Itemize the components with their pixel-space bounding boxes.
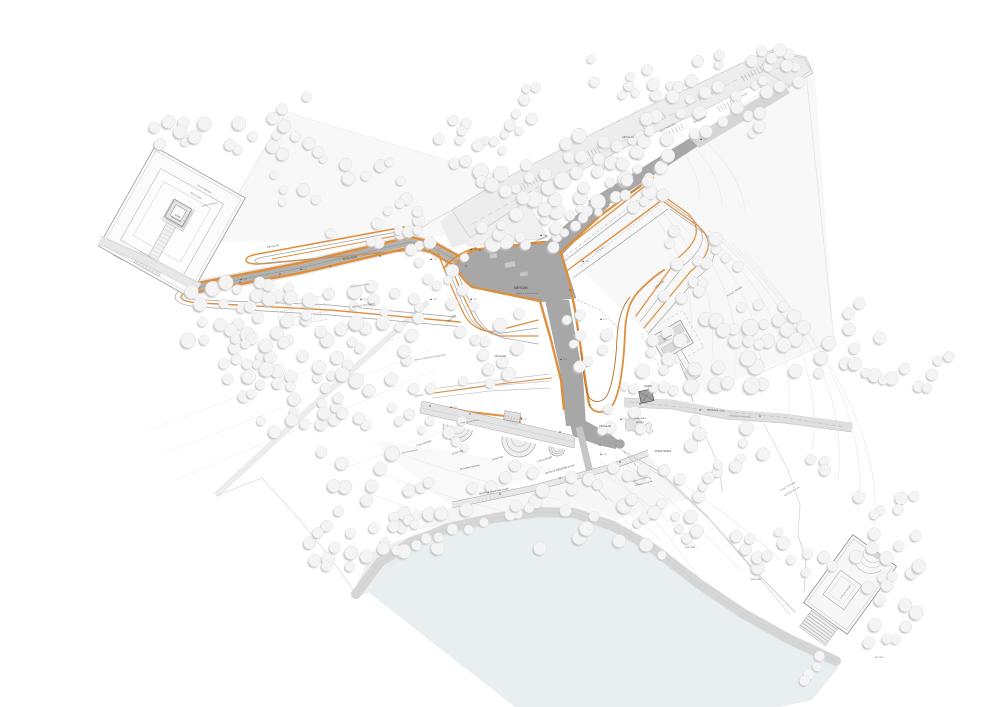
- svg-text:77.35: 77.35: [603, 319, 607, 321]
- svg-text:Şelale/Süs Havuzu Kademe: Şelale/Süs Havuzu Kademe: [516, 293, 538, 295]
- svg-text:TRAFO: TRAFO: [644, 385, 652, 388]
- svg-text:77.35: 77.35: [473, 299, 477, 301]
- svg-text:SUP YERİ: SUP YERİ: [751, 578, 762, 581]
- svg-text:MEYDAN: MEYDAN: [514, 286, 528, 290]
- svg-text:77.35: 77.35: [585, 261, 589, 263]
- svg-text:(MEVZİ): (MEVZİ): [636, 421, 644, 424]
- svg-text:77.35: 77.35: [563, 359, 567, 361]
- svg-text:77.35: 77.35: [433, 259, 437, 261]
- svg-text:77.35: 77.35: [523, 419, 527, 421]
- svg-text:77.35: 77.35: [243, 279, 247, 281]
- svg-text:77.35: 77.35: [623, 419, 627, 421]
- svg-text:SUP YERİ: SUP YERİ: [685, 546, 696, 549]
- svg-text:SUP YERİ: SUP YERİ: [875, 656, 884, 659]
- svg-text:77.35: 77.35: [303, 269, 307, 271]
- svg-text:77.35: 77.35: [453, 407, 457, 409]
- svg-text:AHŞAP İSKELE: AHŞAP İSKELE: [655, 450, 672, 453]
- svg-text:KORUGAN: KORUGAN: [634, 417, 645, 420]
- svg-text:77.35: 77.35: [433, 299, 437, 301]
- svg-text:77.35: 77.35: [603, 454, 607, 456]
- svg-text:77.35: 77.35: [473, 249, 477, 251]
